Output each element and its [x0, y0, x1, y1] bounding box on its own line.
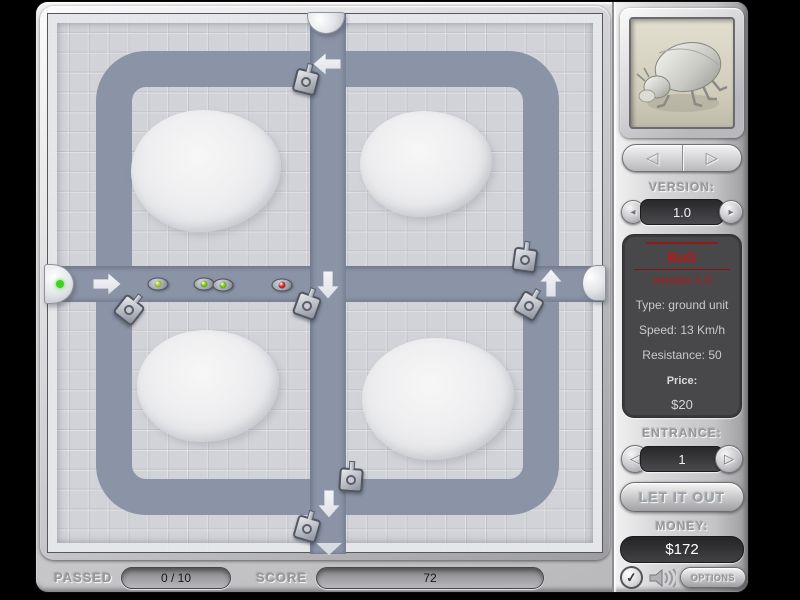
tower[interactable] [291, 67, 320, 96]
tower[interactable] [513, 290, 546, 323]
tower[interactable] [292, 291, 323, 322]
check-icon: ✓ [625, 569, 638, 586]
tower[interactable] [511, 246, 538, 273]
game-board[interactable] [47, 13, 603, 553]
bug [213, 279, 234, 292]
version-label: VERSION: [614, 180, 750, 194]
tower-barrel [531, 288, 541, 299]
app: PASSED 0 / 10 SCORE 72 [0, 0, 800, 600]
sound-icon[interactable] [648, 567, 676, 589]
unit-version: version 1.0 [623, 273, 741, 287]
path-arrow-up-icon [541, 270, 562, 297]
tower-core [346, 475, 357, 486]
tower-core [519, 254, 530, 265]
bug [194, 278, 215, 291]
board-frame [40, 6, 610, 560]
prev-arrow-icon: ◁ [646, 148, 658, 168]
entrance-value-field: 1 [640, 446, 724, 472]
game-window: PASSED 0 / 10 SCORE 72 [36, 2, 748, 592]
tower[interactable] [112, 293, 146, 327]
tower-core [301, 523, 313, 535]
options-label: OPTIONS [691, 573, 735, 583]
options-button[interactable]: OPTIONS [680, 567, 746, 588]
active-entrance-dot [56, 280, 64, 288]
gate-left[interactable] [44, 264, 74, 304]
tower[interactable] [338, 467, 364, 493]
money-value-pill: $172 [620, 536, 744, 563]
unit-nav: ◁ ▷ [622, 144, 742, 172]
entrance-next-icon: ▷ [724, 451, 734, 467]
sidebar-bottom-row: ✓ OPTIONS [614, 565, 750, 591]
price-label: Price: [623, 375, 741, 387]
entrance-selector: ◁ 1 ▷ [614, 445, 750, 473]
next-unit-button[interactable]: ▷ [683, 145, 742, 171]
score-label: SCORE [256, 570, 307, 585]
prev-unit-button[interactable]: ◁ [623, 145, 682, 171]
unit-type: Type: ground unit [623, 298, 741, 312]
version-value: 1.0 [673, 205, 691, 220]
entrance-prev-icon: ◁ [630, 451, 640, 467]
price-value: $20 [623, 397, 741, 412]
entity-layer [48, 14, 602, 552]
mound [131, 110, 281, 232]
score-value-pill: 72 [316, 567, 544, 589]
tower-core [300, 76, 312, 88]
passed-value-pill: 0 / 10 [121, 567, 231, 589]
tower-core [522, 299, 536, 313]
money-value: $172 [665, 541, 698, 558]
mound [362, 338, 514, 460]
beetle-icon [629, 17, 735, 129]
path-arrow-down-icon [318, 272, 339, 299]
path-arrow-left-icon [314, 54, 341, 75]
tower-barrel [307, 510, 315, 520]
let-it-out-label: LET IT OUT [639, 489, 725, 505]
let-it-out-button[interactable]: LET IT OUT [620, 482, 744, 512]
confirm-toggle-button[interactable]: ✓ [619, 565, 644, 590]
passed-label: PASSED [54, 570, 113, 585]
tower-barrel [308, 287, 317, 298]
bug-health-dot [220, 282, 227, 289]
passed-value: 0 / 10 [161, 571, 191, 585]
unit-speed: Speed: 13 Km/h [623, 323, 741, 337]
version-prev-icon: ◂ [630, 207, 635, 218]
path-arrow-down-icon [319, 491, 340, 518]
version-next-icon: ▸ [728, 207, 733, 218]
divider [634, 269, 730, 270]
fine-print-line [646, 242, 718, 244]
unit-resistance: Resistance: 50 [623, 348, 741, 362]
unit-portrait-frame [620, 8, 744, 138]
bug-health-dot [279, 282, 286, 289]
gate-right[interactable] [582, 265, 606, 301]
unit-info-panel: BuG version 1.0 Type: ground unit Speed:… [622, 234, 742, 418]
tower-barrel [523, 241, 530, 251]
tower-core [301, 300, 314, 313]
version-next-button[interactable]: ▸ [719, 200, 743, 224]
mound [360, 111, 492, 217]
path-arrow-right-icon [94, 274, 121, 295]
bug [272, 279, 293, 292]
mound [137, 330, 279, 442]
next-arrow-icon: ▷ [706, 148, 718, 168]
version-value-field: 1.0 [640, 199, 724, 225]
tower-barrel [349, 461, 356, 470]
bug [148, 278, 169, 291]
unit-name: BuG [623, 249, 741, 265]
tower[interactable] [292, 514, 322, 544]
score-value: 72 [423, 571, 436, 585]
entrance-value: 1 [678, 452, 685, 467]
bug-health-dot [201, 281, 208, 288]
entrance-label: ENTRANCE: [614, 426, 750, 440]
beetle-illustration [631, 19, 733, 127]
tower-barrel [306, 63, 314, 73]
entrance-next-button[interactable]: ▷ [715, 445, 743, 473]
status-bar: PASSED 0 / 10 SCORE 72 [42, 562, 612, 590]
version-selector: ◂ 1.0 ▸ [614, 198, 750, 226]
sidebar: ◁ ▷ VERSION: ◂ 1.0 ▸ [612, 2, 748, 592]
gate-top[interactable] [307, 12, 345, 34]
money-label: MONEY: [614, 519, 750, 533]
tower-core [122, 303, 136, 317]
bug-health-dot [155, 281, 162, 288]
tower-barrel [133, 293, 143, 304]
